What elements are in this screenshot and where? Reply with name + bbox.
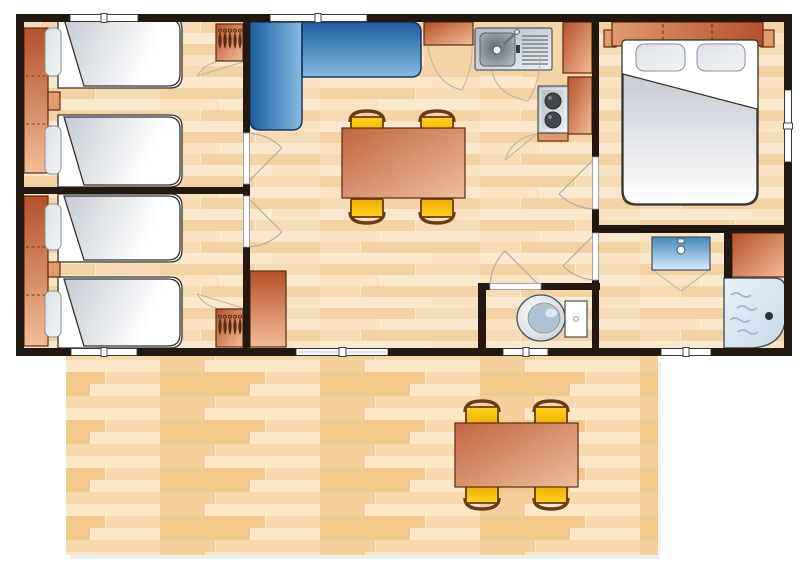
wall-bedrooms-living (243, 247, 250, 348)
corner-cabinet (732, 233, 786, 277)
shower (724, 278, 786, 348)
toilet (517, 295, 587, 341)
wall-wc-top (541, 283, 600, 290)
basin-faucet-icon (677, 239, 685, 254)
shower-drain (765, 312, 773, 320)
wall-bedrooms-living (243, 184, 250, 196)
dining-table (342, 128, 465, 198)
stove (538, 77, 592, 141)
pillow (45, 291, 61, 337)
floor-plan-canvas (0, 0, 800, 565)
sofa-long-section (302, 22, 421, 77)
wall-bathroom-stub (724, 233, 732, 278)
nightstand (48, 262, 60, 277)
single-bed (45, 17, 182, 88)
pillow (45, 126, 61, 174)
sink-drain (493, 46, 501, 54)
single-bed (45, 115, 182, 187)
patio-window (296, 348, 388, 357)
wall-master-bathroom (592, 225, 784, 233)
master-bedroom (604, 22, 774, 205)
wall-living-bathroom (592, 280, 599, 348)
window (503, 348, 548, 357)
wall-wc-left (478, 283, 486, 348)
pillow (45, 204, 61, 250)
window (661, 348, 711, 357)
stove-side-cabinet (568, 77, 592, 134)
sink-lever (516, 45, 520, 53)
door-leaf-bathroom (593, 233, 599, 280)
door-leaf-bedroom-1 (244, 133, 250, 184)
pillow (697, 44, 745, 71)
wall-living-master (592, 22, 599, 157)
wardrobe (24, 28, 48, 173)
deck-table (455, 423, 578, 487)
kitchen-cabinet (424, 22, 473, 45)
pillow (45, 28, 61, 76)
window (71, 348, 137, 357)
door-leaf-wc (490, 284, 541, 290)
cistern (565, 301, 587, 337)
double-bed (622, 40, 758, 205)
door-leaf-master (593, 157, 599, 209)
pillow (636, 44, 685, 71)
wall-bedrooms-living (243, 22, 250, 133)
nightstand (48, 92, 60, 110)
wc (517, 295, 587, 341)
stove-base-cabinet (538, 133, 568, 141)
wall-bedroom-divider (16, 187, 247, 194)
sofa-short-section (250, 22, 302, 130)
wardrobe (24, 196, 48, 346)
single-bed (45, 194, 182, 262)
window (270, 14, 367, 23)
kitchen-tall-cabinet (563, 22, 592, 73)
wall-exterior-right (784, 14, 792, 356)
single-bed (45, 277, 182, 348)
storage-cabinet (250, 271, 286, 347)
wall-exterior-left (16, 14, 24, 356)
door-leaf-bedroom-2 (244, 196, 250, 247)
deck-shadow-right (658, 362, 661, 555)
floor-plan (0, 0, 800, 565)
window (784, 90, 793, 162)
window (70, 14, 138, 23)
deck-shadow (70, 555, 660, 559)
